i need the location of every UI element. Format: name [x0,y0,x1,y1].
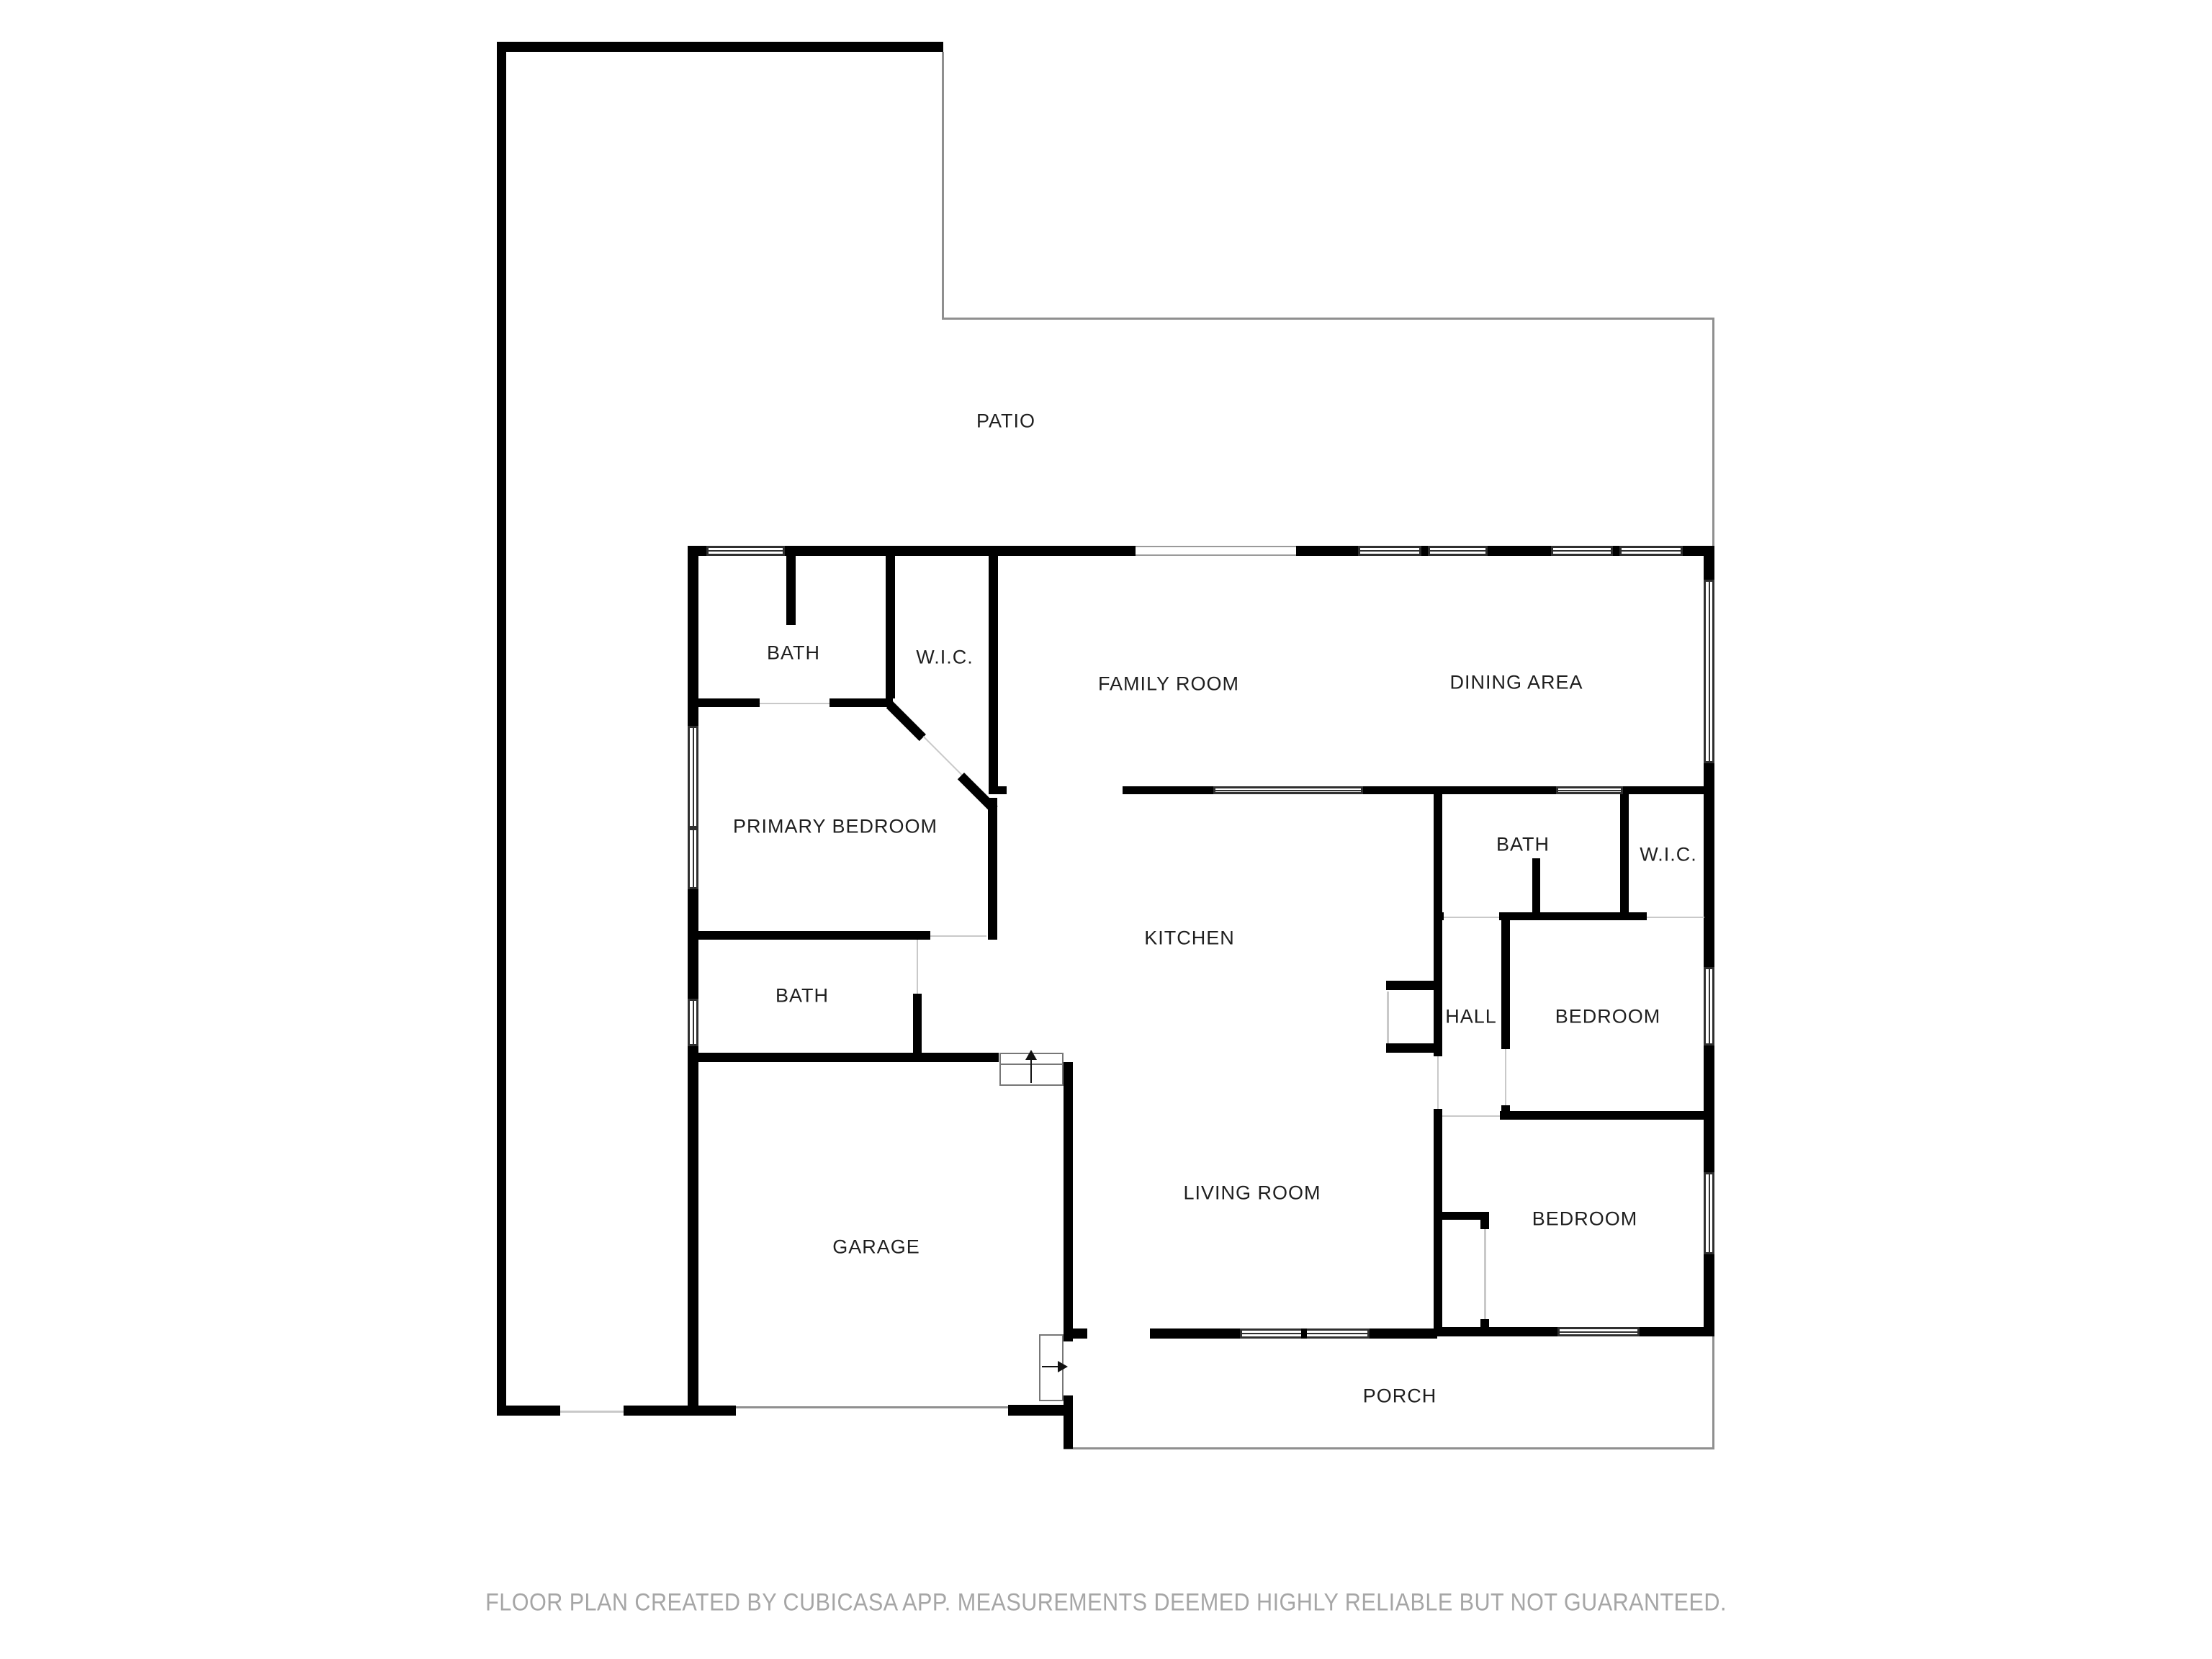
wall-segment [1623,786,1714,794]
room-label-living-room: LIVING ROOM [1183,1182,1321,1205]
wall-segment [1363,786,1556,794]
wall-segment [497,42,506,1416]
wall-segment [913,994,922,1053]
wall-segment [688,1053,999,1062]
wall-segment [1704,1254,1714,1336]
wall-segment [1008,1405,1064,1416]
room-label-dining-area: DINING AREA [1449,672,1583,694]
room-label-family-room: FAMILY ROOM [1098,673,1239,696]
wall-segment [988,798,997,940]
wall-segment [1704,546,1714,580]
boundary-line [1712,1336,1714,1449]
room-label-bath-garage: BATH [775,985,829,1007]
door-opening [923,736,963,775]
boundary-line [942,52,944,319]
wall-segment [1064,1062,1073,1341]
wall-segment [1434,912,1444,920]
interior-window [1556,786,1623,794]
wall-segment [1704,912,1714,920]
room-label-wic-bedroom: W.I.C. [1640,844,1697,866]
room-label-bath-primary: BATH [767,642,820,665]
room-label-primary-bedroom: PRIMARY BEDROOM [733,816,938,838]
wall-segment [997,786,1007,794]
door-opening [1442,1115,1500,1117]
window [688,726,698,828]
wall-segment [1704,1046,1714,1172]
boundary-line [1712,318,1714,547]
wall-segment [688,931,930,940]
door-opening [560,1411,624,1413]
wall-segment [1499,912,1647,920]
boundary-line [736,1406,1008,1408]
door-opening [917,940,918,994]
room-label-garage: GARAGE [832,1236,920,1259]
footer-disclaimer: FLOOR PLAN CREATED BY CUBICASA APP. MEAS… [485,1589,1727,1617]
wall-segment [497,1406,560,1416]
room-label-porch: PORCH [1363,1385,1437,1408]
window [688,999,698,1046]
window [1428,546,1488,556]
room-label-bedroom-ne: BEDROOM [1555,1006,1661,1028]
room-label-bedroom-se: BEDROOM [1532,1208,1638,1231]
wall-segment [785,546,1136,556]
wall-segment [1150,1328,1240,1339]
wall-segment [1370,1328,1437,1339]
wall-segment [1488,546,1551,556]
wall-segment [497,42,943,52]
wall-segment [688,889,698,999]
wall-segment [1500,1111,1714,1120]
door-opening [1437,1056,1439,1109]
window [1704,1172,1714,1254]
wall-segment [989,546,998,794]
wall-segment [1386,1043,1442,1053]
door-opening [1444,917,1499,918]
window [1551,546,1613,556]
door-opening [1647,917,1704,918]
window [1557,1327,1640,1336]
wall-segment [1386,981,1442,990]
window [1704,967,1714,1046]
pantry-door [1387,992,1389,1043]
room-label-wic-primary: W.I.C. [916,647,974,669]
room-label-kitchen: KITCHEN [1144,927,1235,950]
boundary-line [942,318,1714,320]
boundary-line [1064,1447,1714,1449]
window [1704,580,1714,763]
room-label-patio: PATIO [976,410,1035,433]
entry-door-arrow-icon [1042,1366,1058,1367]
wall-segment [1640,1327,1714,1336]
wall-segment [688,698,760,707]
wall-segment [1437,1327,1557,1336]
patio-door-opening [1136,546,1296,556]
wall-segment [1480,1212,1489,1229]
wall-segment [1532,858,1540,912]
room-label-hall: HALL [1445,1006,1497,1028]
wall-segment [624,1406,736,1416]
wall-segment [886,701,926,741]
cased-opening [1213,786,1363,794]
wall-segment [1296,546,1358,556]
door-opening [930,935,986,937]
door-opening [1505,1049,1506,1105]
entry-door-arrowhead-icon [1058,1361,1068,1372]
window [688,828,698,889]
window [1358,546,1421,556]
wall-segment [1123,786,1213,794]
wall-segment [1620,794,1629,912]
wall-segment [1301,1328,1307,1339]
wall-segment [1501,920,1510,1049]
wall-segment [786,556,796,625]
stairs-up-arrow-icon [1030,1060,1032,1083]
window [1619,546,1683,556]
wall-segment [1064,1395,1073,1449]
wall-segment [1480,1319,1489,1327]
wall-segment [886,546,895,698]
closet-door [1484,1229,1486,1319]
wall-segment [1421,546,1428,556]
wall-segment [913,931,922,940]
stairs-up-arrowhead-icon [1025,1050,1037,1060]
wall-segment [829,698,893,707]
room-label-bath-hall: BATH [1496,834,1550,856]
floor-plan: PATIO BATH W.I.C. FAMILY ROOM DINING ARE… [0,0,2212,1659]
wall-segment [688,1046,698,1416]
window [706,546,785,556]
door-opening [760,703,829,704]
wall-segment [1613,546,1619,556]
wall-segment [1434,794,1442,981]
